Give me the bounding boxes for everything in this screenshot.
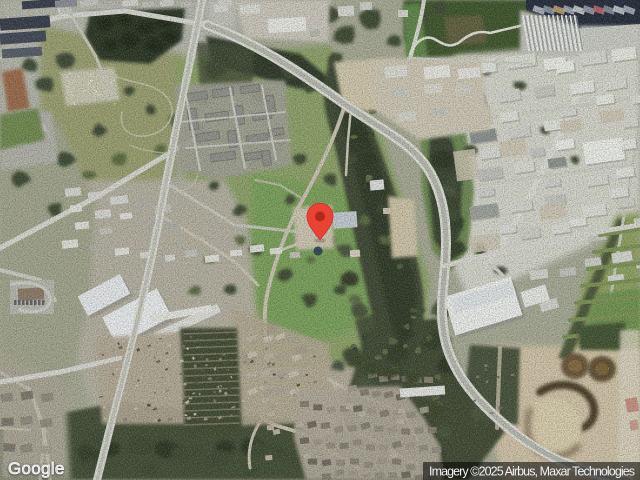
svg-text:Google: Google xyxy=(8,459,65,478)
svg-text:Imagery ©2025 Airbus, Maxar Te: Imagery ©2025 Airbus, Maxar Technologies xyxy=(429,465,635,479)
